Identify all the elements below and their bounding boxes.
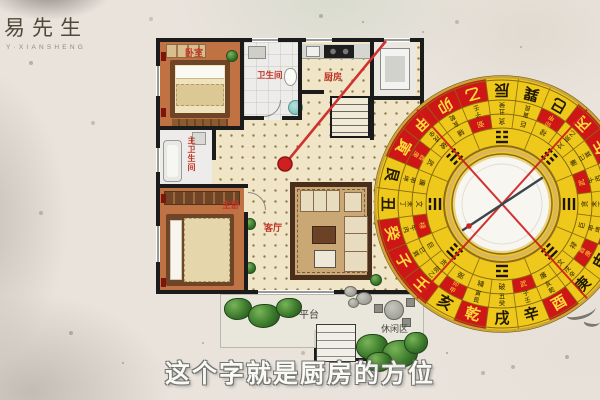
svg-text:未: 未 bbox=[591, 201, 599, 207]
svg-text:贪: 贪 bbox=[580, 200, 589, 207]
stone-icon bbox=[348, 298, 359, 308]
svg-text:丑: 丑 bbox=[499, 294, 505, 301]
window bbox=[156, 148, 160, 172]
toilet bbox=[284, 68, 297, 86]
svg-text:戌: 戌 bbox=[494, 309, 509, 327]
bathtub-inner bbox=[167, 145, 178, 177]
label-bathroom: 卫生间 bbox=[257, 69, 283, 81]
cooktop bbox=[324, 45, 354, 58]
wall-marker bbox=[161, 194, 166, 203]
svg-text:破: 破 bbox=[499, 282, 506, 291]
channel-logo-latin: Y·XIANSHENG bbox=[6, 44, 86, 51]
stone-icon bbox=[344, 286, 357, 297]
coffee-table bbox=[312, 226, 336, 244]
window bbox=[156, 66, 160, 96]
bed-quilt bbox=[176, 84, 224, 106]
label-master-bathroom: 主卫生间 bbox=[186, 136, 197, 182]
label-bedroom: 卧室 bbox=[185, 46, 203, 59]
master-bed-quilt bbox=[184, 218, 230, 282]
side-table bbox=[314, 250, 336, 268]
svg-text:丑: 丑 bbox=[379, 196, 397, 211]
wall-marker bbox=[161, 108, 166, 117]
luopan-compass: 未坤申庚酉辛戌乾亥壬子癸丑艮寅甲卯乙辰巽巳丙午丁丁未坤申庚酉辛戌乾亥壬子癸丑艮寅… bbox=[374, 74, 600, 336]
video-frame: 易先生 Y·XIANSHENG bbox=[0, 0, 600, 400]
label-master-bedroom: 主卧 bbox=[222, 198, 240, 211]
subtitle-text: 这个字就是厨房的方位 bbox=[165, 354, 435, 390]
window bbox=[252, 38, 278, 42]
armchair bbox=[344, 192, 362, 212]
label-living-room: 客厅 bbox=[264, 221, 282, 234]
svg-text:贪: 贪 bbox=[498, 117, 505, 126]
svg-text:丑: 丑 bbox=[499, 108, 505, 115]
label-kitchen: 厨房 bbox=[324, 70, 342, 83]
svg-text:癸: 癸 bbox=[499, 300, 505, 308]
background-speckles bbox=[0, 0, 2, 2]
window bbox=[156, 226, 160, 262]
wall-marker bbox=[161, 278, 166, 287]
channel-logo: 易先生 bbox=[4, 12, 88, 42]
svg-text:辰: 辰 bbox=[494, 81, 510, 99]
wall-marker bbox=[161, 52, 166, 61]
svg-text:文: 文 bbox=[415, 201, 424, 208]
sofa bbox=[300, 190, 340, 212]
bathroom-sink bbox=[248, 46, 266, 59]
sofa-l-section bbox=[344, 216, 368, 272]
bed-pillows bbox=[176, 66, 224, 79]
master-bed-pillows bbox=[170, 220, 182, 280]
kitchen-sink bbox=[306, 46, 320, 57]
staircase bbox=[330, 96, 370, 138]
label-terrace: 平台 bbox=[299, 306, 319, 321]
window bbox=[306, 38, 332, 42]
window bbox=[384, 38, 410, 42]
plant-icon bbox=[226, 50, 238, 62]
svg-text:未: 未 bbox=[406, 201, 414, 207]
svg-text:癸: 癸 bbox=[499, 101, 505, 109]
svg-text:丁: 丁 bbox=[399, 201, 406, 207]
